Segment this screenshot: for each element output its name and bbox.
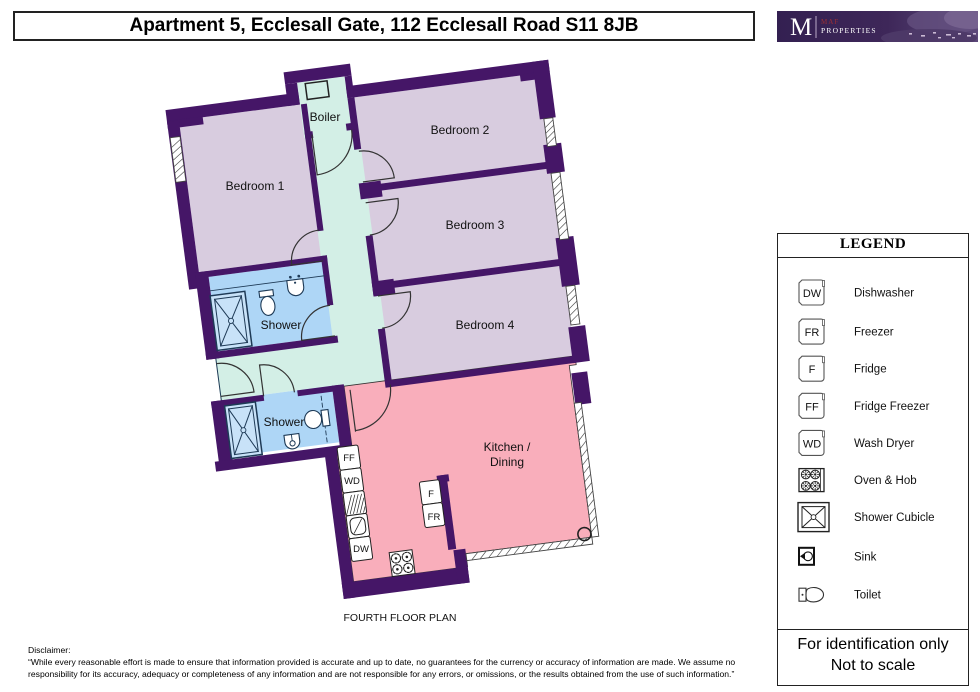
svg-text:DW: DW [803, 288, 822, 300]
svg-text:F: F [809, 364, 816, 376]
svg-text:Freezer: Freezer [854, 327, 894, 339]
svg-text:Bedroom 3: Bedroom 3 [446, 218, 505, 232]
svg-text:Kitchen /: Kitchen / [484, 440, 531, 454]
svg-text:DW: DW [353, 544, 369, 555]
svg-text:Sink: Sink [854, 551, 877, 563]
svg-text:F: F [428, 489, 434, 500]
svg-text:Bedroom 1: Bedroom 1 [226, 179, 285, 193]
svg-text:FF: FF [805, 401, 819, 413]
svg-text:FR: FR [805, 327, 820, 339]
svg-text:Dishwasher: Dishwasher [854, 288, 914, 300]
svg-text:Fridge: Fridge [854, 364, 887, 376]
svg-text:Bedroom 4: Bedroom 4 [456, 318, 515, 332]
svg-text:Shower: Shower [261, 318, 302, 332]
svg-text:Fridge Freezer: Fridge Freezer [854, 401, 930, 413]
svg-text:WD: WD [344, 476, 360, 487]
svg-text:Wash Dryer: Wash Dryer [854, 438, 914, 450]
svg-text:Dining: Dining [490, 455, 524, 469]
svg-text:Bedroom 2: Bedroom 2 [431, 123, 490, 137]
svg-text:Boiler: Boiler [310, 110, 341, 124]
svg-text:FR: FR [428, 512, 441, 523]
svg-text:Oven & Hob: Oven & Hob [854, 475, 917, 487]
svg-text:FOURTH FLOOR PLAN: FOURTH FLOOR PLAN [344, 612, 457, 624]
svg-text:Shower: Shower [264, 415, 305, 429]
svg-text:Toilet: Toilet [854, 590, 882, 602]
svg-text:WD: WD [803, 438, 821, 450]
svg-text:FF: FF [343, 453, 355, 464]
svg-text:Shower Cubicle: Shower Cubicle [854, 512, 935, 524]
